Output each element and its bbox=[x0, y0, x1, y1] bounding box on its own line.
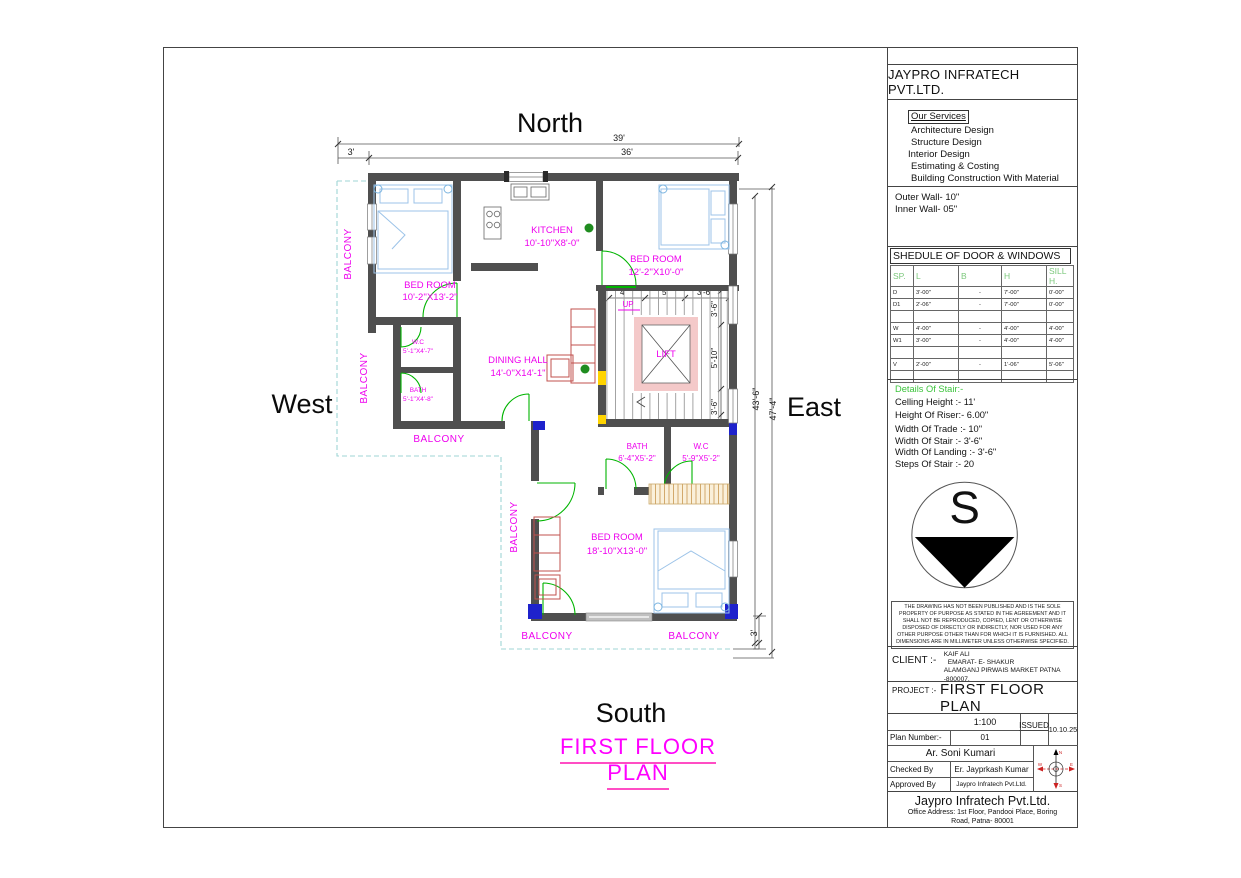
disclaimer-text: THE DRAWING HAS NOT BEEN PUBLISHED AND I… bbox=[891, 601, 1074, 649]
service-item: Architecture Design bbox=[908, 125, 1077, 137]
footer-company: Jaypro Infratech Pvt.Ltd. bbox=[888, 794, 1077, 808]
col-h: H bbox=[1002, 266, 1047, 287]
room-kitchen-size: 10'-10''X8'-0" bbox=[525, 238, 580, 249]
issued-label: ISSUED bbox=[1020, 714, 1048, 738]
room-bedroom1-name: BED ROOM bbox=[404, 280, 456, 291]
plan-number-label: Plan Number:- bbox=[890, 730, 950, 745]
col-l: L bbox=[914, 266, 959, 287]
svg-text:W: W bbox=[1037, 762, 1042, 767]
balcony-label-2: BALCONY bbox=[359, 352, 370, 403]
schedule-row-v: V2'-00"-1'-06"5'-06" bbox=[891, 359, 1074, 371]
disclaimer-section: THE DRAWING HAS NOT BEEN PUBLISHED AND I… bbox=[888, 599, 1077, 646]
checked-by-label: Checked By bbox=[890, 761, 950, 777]
room-bedroom2-size: 12'-2''X10'-0" bbox=[629, 267, 684, 278]
services-heading: Our Services bbox=[908, 110, 969, 124]
schedule-row-w: W4'-00"-4'-00"4'-00" bbox=[891, 323, 1074, 335]
room-bath1-name: BATH bbox=[410, 387, 427, 394]
balcony-label-3: BALCONY bbox=[413, 434, 464, 445]
footer-address: Office Address: 1st Floor, Pandooi Place… bbox=[908, 809, 1058, 826]
room-wc2-name: W.C bbox=[693, 442, 708, 451]
bed-2 bbox=[659, 185, 729, 249]
lift-label: LIFT bbox=[656, 349, 676, 360]
drawn-by-value: Ar. Soni Kumari bbox=[888, 745, 1033, 761]
project-section: PROJECT :- FIRST FLOOR PLAN bbox=[888, 681, 1077, 713]
svg-text:S: S bbox=[1058, 783, 1061, 788]
stair-detail-line: Width Of Trade :- 10" bbox=[895, 423, 1077, 436]
plan-number-value: 01 bbox=[950, 730, 1020, 745]
service-item: Interior Design bbox=[905, 149, 1077, 161]
dim-36: 36' bbox=[621, 147, 633, 157]
project-label: PROJECT :- bbox=[888, 682, 940, 713]
room-wc1-size: 5'-1''X4'-7" bbox=[403, 348, 433, 355]
wall-spec-section: Outer Wall- 10" Inner Wall- 05" bbox=[888, 186, 1077, 246]
svg-text:N: N bbox=[1058, 750, 1061, 755]
kitchen-stove bbox=[484, 207, 501, 239]
client-section: CLIENT :- KAIF ALI EMARAT- E- SHAKUR ALA… bbox=[888, 646, 1077, 681]
schedule-header-row: SP. L B H SILL H. bbox=[891, 266, 1074, 287]
col-b: B bbox=[959, 266, 1002, 287]
outer-wall-spec: Outer Wall- 10" bbox=[895, 192, 1077, 204]
room-dining-size: 14'-0''X14'-1" bbox=[491, 368, 546, 379]
stair-detail-line: Steps Of Stair :- 20 bbox=[895, 458, 1077, 471]
footer-section: Jaypro Infratech Pvt.Ltd. Office Address… bbox=[888, 791, 1077, 827]
room-bath2-name: BATH bbox=[627, 442, 648, 451]
service-item: Building Construction With Material bbox=[908, 173, 1077, 185]
compass-letter: S bbox=[949, 482, 980, 533]
svg-text:E: E bbox=[1069, 762, 1072, 767]
dim-3-bottom: 3' bbox=[749, 629, 759, 636]
approved-by-label: Approved By bbox=[890, 777, 950, 792]
approval-section: 1:100 ISSUED 10.10.25 Plan Number:- 01 A… bbox=[888, 713, 1077, 791]
balcony-label-5: BALCONY bbox=[521, 631, 572, 642]
floor-plan: 39' 36' 3' 43'-6" 47'-4" 3' 4' 5' 3'-6" … bbox=[271, 101, 811, 671]
dim-3-left: 3' bbox=[348, 147, 355, 157]
armchair-lower bbox=[535, 575, 560, 599]
room-kitchen-name: KITCHEN bbox=[531, 225, 573, 236]
schedule-row-d: D3'-00"-7'-00"0'-00" bbox=[891, 287, 1074, 299]
plan-title: FIRST FLOOR PLAN bbox=[528, 734, 748, 786]
balcony-label-4: BALCONY bbox=[509, 501, 520, 552]
room-bath1-size: 5'-1''X4'-8" bbox=[403, 396, 433, 403]
schedule-row-blank bbox=[891, 311, 1074, 323]
stair-up-label: UP bbox=[622, 300, 633, 309]
plants bbox=[581, 224, 594, 374]
stair-detail-line: Width Of Stair :- 3'-6" bbox=[895, 436, 1077, 447]
checked-by-value: Er. Jayprkash Kumar bbox=[950, 761, 1033, 777]
room-wc1-name: W.C bbox=[412, 339, 424, 346]
dim-43-6: 43'-6" bbox=[751, 388, 761, 411]
room-bedroom2-name: BED ROOM bbox=[630, 254, 682, 265]
company-name: JAYPRO INFRATECH PVT.LTD. bbox=[888, 64, 1077, 100]
client-line: EMARAT- E- SHAKUR bbox=[944, 659, 1077, 667]
approved-by-value: Jaypro Infratech Pvt.Ltd. bbox=[950, 777, 1033, 792]
client-label: CLIENT :- bbox=[888, 647, 944, 681]
schedule-row-w1: W13'-00"-4'-00"4'-00" bbox=[891, 335, 1074, 347]
stair-details-title: Details Of Stair:- bbox=[895, 383, 1077, 396]
client-name: KAIF ALI bbox=[944, 651, 1077, 659]
kitchen-sink bbox=[511, 184, 549, 200]
col-sill: SILL H. bbox=[1047, 266, 1074, 287]
compass-rose: NS WE bbox=[1033, 745, 1078, 792]
schedule-row-blank bbox=[891, 347, 1074, 359]
issued-date: 10.10.25 bbox=[1048, 714, 1078, 745]
title-block: JAYPRO INFRATECH PVT.LTD. Our Services A… bbox=[887, 48, 1077, 827]
stair-detail-line: Celling Height :- 11' bbox=[895, 396, 1077, 409]
stair-details-section: Details Of Stair:- Celling Height :- 11'… bbox=[888, 379, 1077, 471]
balcony-label-1: BALCONY bbox=[343, 228, 354, 279]
door-window-schedule: SHEDULE OF DOOR & WINDOWS SP. L B H SILL… bbox=[888, 246, 1077, 379]
service-item: Estimating & Costing bbox=[908, 161, 1077, 173]
bed-1 bbox=[374, 185, 452, 273]
room-wc2-size: 5'-9''X5'-2" bbox=[682, 454, 720, 463]
inner-wall-spec: Inner Wall- 05" bbox=[895, 204, 1077, 216]
stair-detail-line: Width Of Landing :- 3'-6" bbox=[895, 447, 1077, 458]
room-dining-name: DINING HALL bbox=[488, 355, 548, 366]
drawing-sheet: North West East South FIRST FLOOR PLAN bbox=[163, 47, 1078, 828]
col-sp: SP. bbox=[891, 266, 914, 287]
stair-detail-line: Height Of Riser:- 6.00" bbox=[895, 409, 1077, 422]
balcony-label-6: BALCONY bbox=[668, 631, 719, 642]
wardrobe bbox=[649, 484, 729, 504]
dim-39: 39' bbox=[613, 133, 625, 143]
room-bedroom1-size: 10'-2''X13'-2" bbox=[403, 292, 458, 303]
room-bath2-size: 6'-4''X5'-2" bbox=[618, 454, 656, 463]
chair-dining bbox=[547, 355, 573, 381]
south-label: South bbox=[551, 698, 711, 729]
services-section: Our Services Architecture Design Structu… bbox=[888, 100, 1077, 186]
bed-3 bbox=[654, 529, 729, 613]
dim-47-4: 47'-4" bbox=[768, 398, 778, 421]
project-name: FIRST FLOOR PLAN bbox=[940, 682, 1077, 713]
schedule-row-d1: D12'-06"-7'-00"0'-00" bbox=[891, 299, 1074, 311]
room-bedroom3-name: BED ROOM bbox=[591, 532, 643, 543]
service-item: Structure Design bbox=[908, 137, 1077, 149]
schedule-title: SHEDULE OF DOOR & WINDOWS bbox=[890, 248, 1071, 264]
room-bedroom3-size: 18'-10''X13'-0" bbox=[587, 546, 647, 557]
scale-value: 1:100 bbox=[950, 714, 1020, 730]
south-compass: S bbox=[888, 471, 1077, 599]
